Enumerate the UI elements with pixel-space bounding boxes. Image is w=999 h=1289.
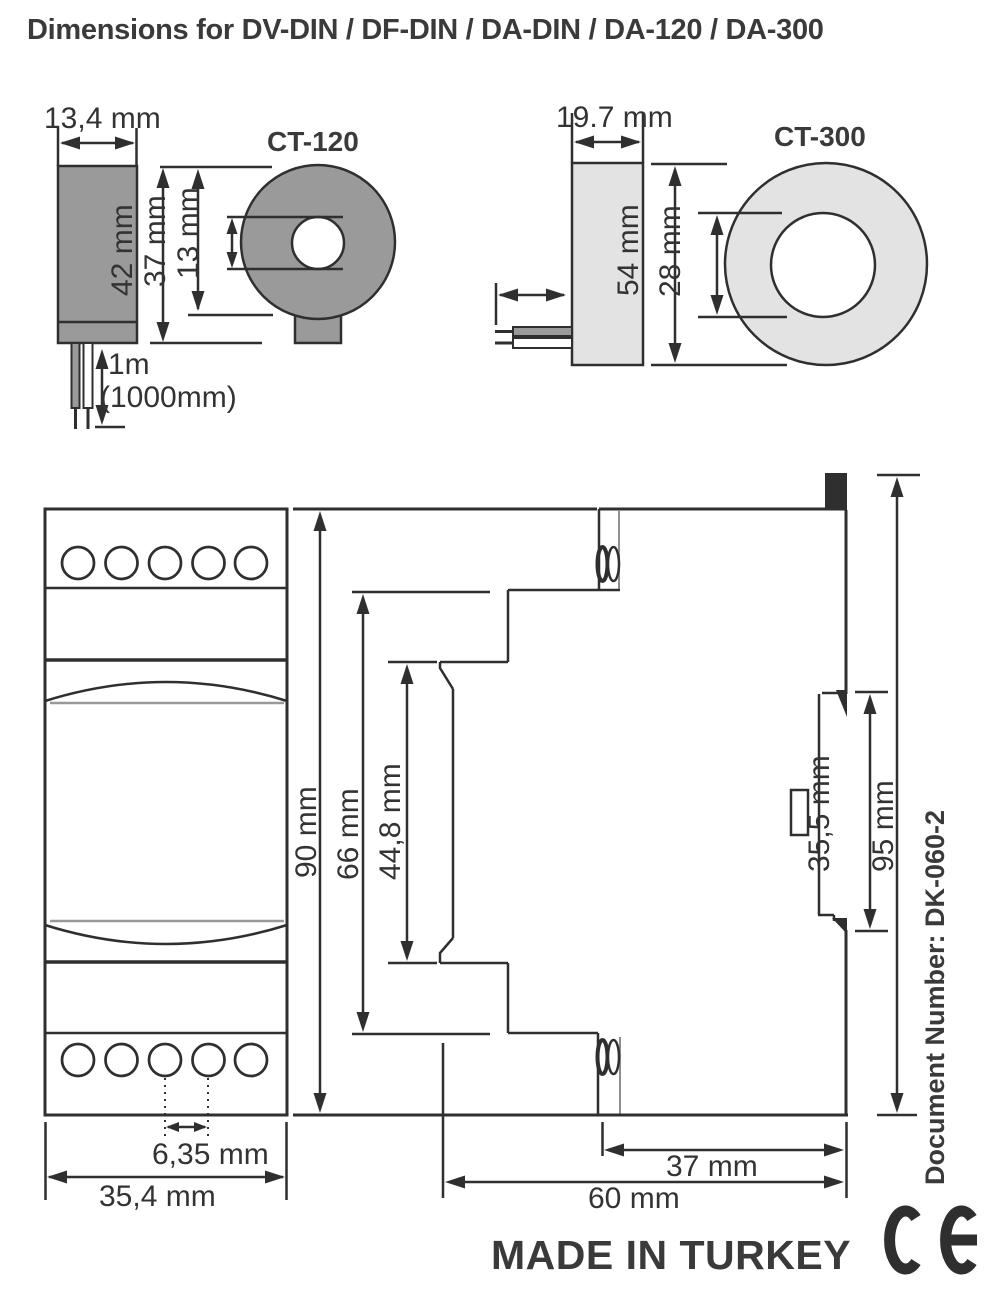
ct300-front-view <box>725 163 927 365</box>
ct300-hole-label: 28 mm <box>656 205 686 297</box>
side-total-height-label: 95 mm <box>869 780 899 872</box>
front-height-label: 90 mm <box>292 786 322 878</box>
side-inner-height-label: 66 mm <box>334 788 364 880</box>
din-hook-top <box>825 473 847 510</box>
din-hook-upper-wedge <box>836 690 847 717</box>
ct120-title: CT-120 <box>267 127 359 157</box>
document-number-label: Document Number: DK-060-2 <box>919 810 951 1185</box>
ct120-body-height-label: 37 mm <box>141 195 171 287</box>
ct300-height-label: 54 mm <box>614 204 644 296</box>
front-width-label: 35,4 mm <box>99 1182 216 1212</box>
ce-mark-icon <box>890 1211 977 1269</box>
ct120-width-label: 13,4 mm <box>44 104 161 134</box>
page-title: Dimensions for DV-DIN / DF-DIN / DA-DIN … <box>27 14 824 47</box>
total-depth-label: 60 mm <box>588 1184 680 1214</box>
technical-drawing <box>0 0 999 1289</box>
ct120-front-view <box>241 165 395 343</box>
ct120-height-label: 42 mm <box>108 204 138 296</box>
ct120-cable-length-label: 1m <box>108 350 150 380</box>
module-front-view <box>45 509 287 1115</box>
ct300-title: CT-300 <box>774 122 866 152</box>
dimension-drawing-page: Dimensions for DV-DIN / DF-DIN / DA-DIN … <box>0 0 999 1289</box>
rear-depth-label: 37 mm <box>666 1152 758 1182</box>
side-window-height-label: 44,8 mm <box>376 763 406 880</box>
ct120-hole-label: 13 mm <box>174 187 204 279</box>
din-recess-height-label: 35,5 mm <box>805 755 835 872</box>
ct120-cable-length-mm-label: (1000mm) <box>100 383 237 413</box>
terminal-pitch-label: 6,35 mm <box>152 1140 269 1170</box>
made-in-turkey-label: MADE IN TURKEY <box>491 1232 851 1279</box>
ct300-width-label: 19.7 mm <box>556 103 673 133</box>
